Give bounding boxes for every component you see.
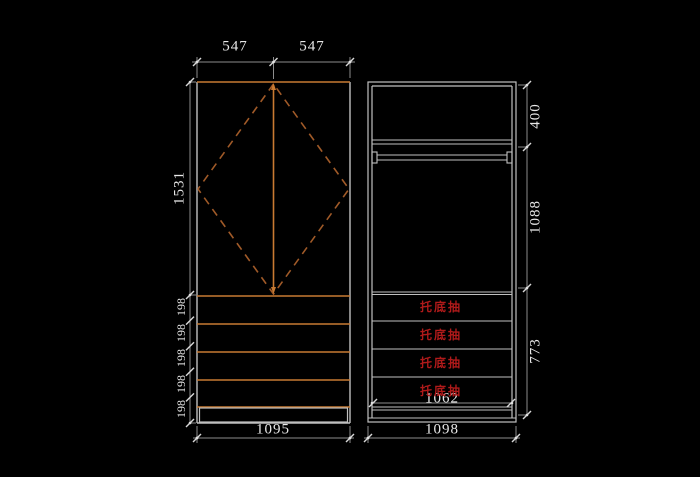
- drawer-type-label-4: 托底抽: [420, 385, 462, 397]
- cad-wardrobe-drawing: 547 547 1531 198 198 198 198 198 1095 40…: [0, 0, 700, 477]
- dim-front-overall-width-1095: 1095: [256, 423, 290, 438]
- drawer-type-label-2: 托底抽: [420, 329, 462, 341]
- drawer-type-label-3: 托底抽: [420, 357, 462, 369]
- dim-front-top-right-547: 547: [299, 40, 325, 55]
- side-view-cabinet-outline: [368, 82, 516, 422]
- front-top-dimension-lines: [192, 57, 355, 79]
- door-center-split-line: [271, 83, 276, 294]
- dim-side-middle-1088: 1088: [529, 200, 544, 234]
- drawer-type-label-1: 托底抽: [420, 301, 462, 313]
- front-view-plinth-base: [200, 408, 348, 422]
- dim-side-top-400: 400: [529, 103, 544, 129]
- dim-front-drawer-198-3: 198: [175, 349, 187, 367]
- dim-front-door-height-1531: 1531: [173, 171, 188, 205]
- dim-front-drawer-198-1: 198: [175, 298, 187, 316]
- dim-front-drawer-198-5: 198: [175, 400, 187, 418]
- dim-front-top-left-547: 547: [222, 40, 248, 55]
- dim-front-drawer-198-4: 198: [175, 375, 187, 393]
- side-right-dimension-chain: [518, 81, 531, 419]
- dim-front-drawer-198-2: 198: [175, 324, 187, 342]
- dim-side-bottom-773: 773: [529, 338, 544, 364]
- side-view-hanging-rod: [372, 152, 512, 163]
- dim-side-overall-width-1098: 1098: [425, 423, 459, 438]
- drawing-geometry: [0, 0, 700, 477]
- side-view-top-shelf: [372, 140, 512, 144]
